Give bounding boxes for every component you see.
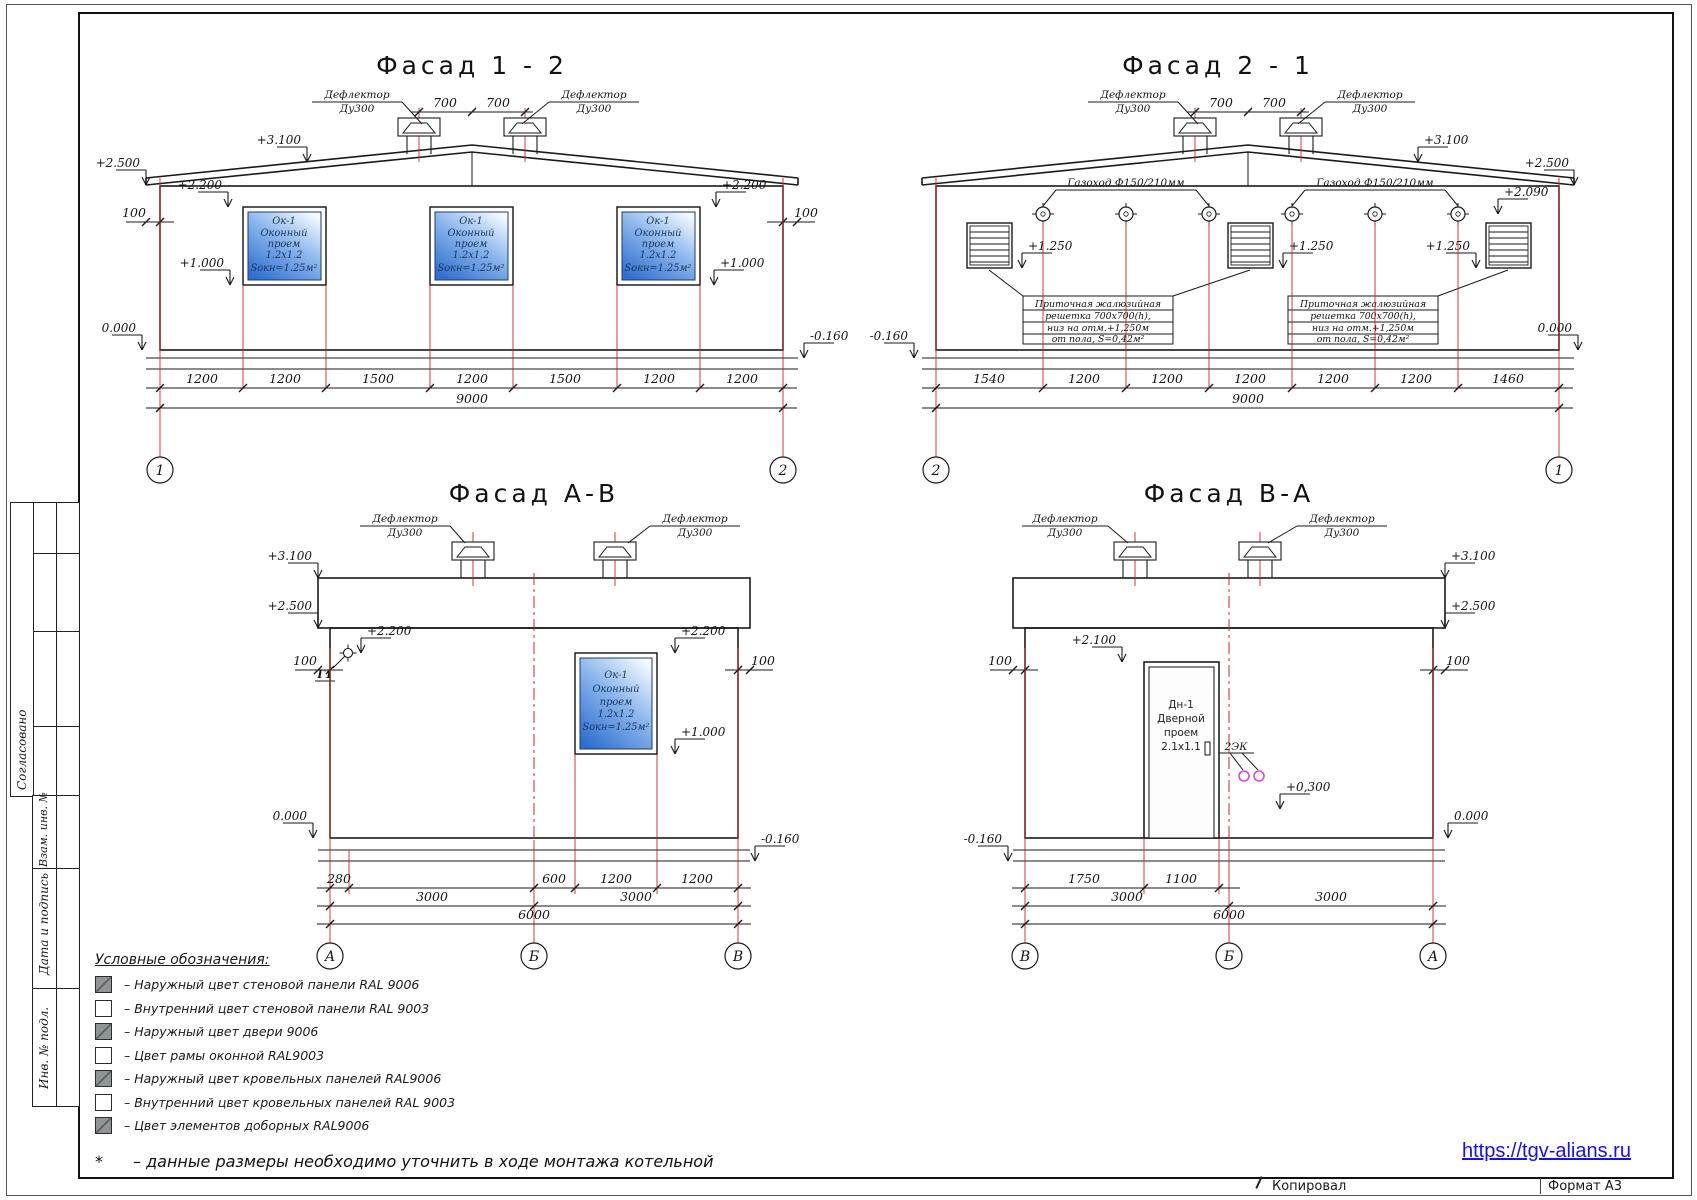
color-swatch-icon (95, 1094, 112, 1111)
color-swatch-icon (95, 1070, 112, 1087)
titleblock-inv-cell: Инв. № подл. (32, 988, 80, 1107)
svg-text:-0.160: -0.160 (870, 329, 909, 343)
svg-text:3000: 3000 (1315, 889, 1347, 904)
window: Ок-1Оконный проем1.2х1.2 Sокн=1.25м² (430, 207, 513, 285)
svg-text:проем: проем (642, 239, 674, 250)
svg-text:решетка 700х700(h),: решетка 700х700(h), (1310, 311, 1416, 322)
svg-text:Дн-1: Дн-1 (1168, 699, 1194, 711)
svg-text:100: 100 (122, 205, 146, 220)
svg-text:Дефлектор: Дефлектор (323, 89, 389, 101)
svg-text:+2.500: +2.500 (1451, 599, 1496, 613)
svg-text:+1.250: +1.250 (1289, 239, 1334, 253)
titleblock-divider (56, 989, 57, 1106)
svg-text:+2.100: +2.100 (1072, 633, 1117, 647)
svg-text:1200: 1200 (726, 371, 758, 386)
titleblock-divider (33, 503, 34, 796)
svg-text:+0,300: +0,300 (1286, 780, 1331, 794)
grille-note-box: Приточная жалюзийнаярешетка 700х700(h), … (989, 270, 1250, 345)
facade-title: Фасад В-А (1144, 479, 1314, 508)
svg-text:700: 700 (433, 95, 457, 110)
svg-text:0.000: 0.000 (1538, 321, 1573, 335)
svg-text:1540: 1540 (973, 371, 1005, 386)
footnote-star: * (95, 1152, 133, 1171)
svg-text:Дефлектор: Дефлектор (560, 89, 626, 101)
titleblock-divider (33, 726, 79, 727)
svg-text:решетка 700х700(h),: решетка 700х700(h), (1045, 311, 1151, 322)
svg-text:Дефлектор: Дефлектор (1336, 89, 1402, 101)
door-handle-icon (1205, 742, 1210, 755)
svg-text:1100: 1100 (1165, 871, 1197, 886)
svg-text:1750: 1750 (1068, 871, 1100, 886)
dimension-row: 12001200 15001200 15001200 1200 (146, 371, 797, 392)
svg-text:Sокн=1.25м²: Sокн=1.25м² (251, 263, 318, 274)
svg-text:Ок-1: Ок-1 (459, 216, 482, 227)
svg-text:Дефлектор: Дефлектор (1308, 513, 1374, 525)
svg-text:+1.000: +1.000 (720, 256, 765, 270)
svg-text:1200: 1200 (456, 371, 488, 386)
titleblock-soglasovano-label: Согласовано (15, 710, 29, 790)
svg-text:низ на отм.+1,250м: низ на отм.+1,250м (1312, 323, 1414, 334)
svg-text:проем: проем (268, 239, 300, 250)
svg-text:+2.500: +2.500 (96, 156, 141, 170)
titleblock-divider (33, 553, 79, 554)
legend-item-label: – Наружный цвет стеновой панели RAL 9006 (124, 977, 419, 992)
svg-text:+3.100: +3.100 (1451, 549, 1496, 563)
svg-text:1200: 1200 (600, 871, 632, 886)
svg-text:1200: 1200 (1234, 371, 1266, 386)
svg-text:проем: проем (1164, 727, 1198, 739)
legend-item-label: – Наружный цвет кровельных панелей RAL90… (124, 1071, 441, 1086)
color-swatch-icon (95, 976, 112, 993)
svg-text:проем: проем (455, 239, 487, 250)
titleblock-vzam-cell: Взам. инв. № (32, 795, 80, 870)
legend-item-label: – Наружный цвет двери 9006 (124, 1024, 318, 1039)
svg-text:+3.100: +3.100 (257, 133, 302, 147)
stack-spacing-dimension: 700 700 (1187, 95, 1309, 116)
door: Дн-1Дверной проем2.1х1.1 (1144, 662, 1219, 838)
svg-text:6000: 6000 (1213, 907, 1245, 922)
legend-item: – Наружный цвет кровельных панелей RAL90… (95, 1070, 695, 1087)
svg-text:700: 700 (486, 95, 510, 110)
svg-text:от пола, S=0,42м²: от пола, S=0,42м² (1317, 334, 1410, 345)
titleblock-vzam-label: Взам. инв. № (37, 792, 50, 867)
svg-text:+2.090: +2.090 (1504, 185, 1549, 199)
svg-text:1500: 1500 (549, 371, 581, 386)
svg-text:Дефлектор: Дефлектор (1031, 513, 1097, 525)
elevation-marks: +3.100 +2.500 +2.100 +0,300 0.000 -0.160… (964, 549, 1496, 861)
svg-text:100: 100 (1446, 653, 1470, 668)
grille-note-box: Приточная жалюзийнаярешетка 700х700(h), … (1288, 270, 1508, 345)
svg-text:Ду300: Ду300 (339, 103, 375, 115)
svg-text:Оконный: Оконный (593, 684, 640, 695)
svg-text:А: А (1427, 949, 1439, 965)
svg-text:100: 100 (794, 205, 818, 220)
svg-text:Sокн=1.25м²: Sокн=1.25м² (438, 263, 505, 274)
svg-text:Оконный: Оконный (448, 228, 495, 239)
svg-text:+1.250: +1.250 (1028, 239, 1073, 253)
svg-text:+2.200: +2.200 (178, 178, 223, 192)
legend-item: – Внутренний цвет стеновой панели RAL 90… (95, 1000, 695, 1017)
deflector-callout: Дефлектор Ду300 Дефлектор Ду300 (312, 89, 639, 124)
deflector-callout: Дефлектор Ду300 Дефлектор Ду300 (1088, 89, 1415, 124)
svg-text:Ду300: Ду300 (1115, 103, 1151, 115)
svg-text:Б: Б (1223, 949, 1234, 965)
legend-item: – Наружный цвет стеновой панели RAL 9006 (95, 976, 695, 993)
svg-text:+3.100: +3.100 (1424, 133, 1469, 147)
svg-text:1.2х1.2: 1.2х1.2 (640, 250, 677, 261)
svg-text:280: 280 (326, 871, 351, 886)
svg-text:+2.200: +2.200 (722, 178, 767, 192)
titleblock-date-label: Дата и подпись (37, 873, 51, 975)
gas-duct-outlets (1032, 203, 1469, 225)
footer-divider (1540, 1178, 1541, 1194)
facade-2-1-drawing: Фасад 2 - 1 700 700 Дефлектор Ду300 Дефл… (858, 28, 1668, 498)
window: Ок-1Оконный проем1.2х1.2 Sокн=1.25м² (617, 207, 700, 285)
svg-text:+1.250: +1.250 (1426, 239, 1471, 253)
svg-text:2.1х1.1: 2.1х1.1 (1161, 741, 1201, 753)
color-swatch-icon (95, 1023, 112, 1040)
svg-text:600: 600 (542, 871, 566, 886)
svg-text:1200: 1200 (643, 371, 675, 386)
svg-text:1460: 1460 (1492, 371, 1524, 386)
svg-text:+2.200: +2.200 (367, 624, 412, 638)
color-swatch-icon (95, 1117, 112, 1134)
svg-text:0.000: 0.000 (1454, 809, 1489, 823)
svg-text:1200: 1200 (1400, 371, 1432, 386)
titleblock-upper: Согласовано (10, 502, 80, 797)
svg-text:+3.100: +3.100 (268, 549, 313, 563)
legend: Условные обозначения: – Наружный цвет ст… (95, 952, 695, 1141)
svg-text:100: 100 (751, 653, 775, 668)
svg-text:Ду300: Ду300 (1352, 103, 1388, 115)
dimension-total: 9000 (146, 391, 797, 412)
svg-text:Дефлектор: Дефлектор (371, 513, 437, 525)
titleblock-divider (56, 796, 57, 869)
svg-text:Дверной: Дверной (1157, 713, 1205, 725)
svg-text:+1.000: +1.000 (180, 256, 225, 270)
color-swatch-icon (95, 1047, 112, 1064)
svg-text:Ду300: Ду300 (387, 527, 423, 539)
deflector-callout: Дефлектор Ду300 Дефлектор Ду300 (360, 513, 740, 543)
svg-text:+2.500: +2.500 (1525, 156, 1570, 170)
svg-text:Приточная жалюзийная: Приточная жалюзийная (1034, 299, 1161, 310)
svg-text:100: 100 (293, 653, 317, 668)
facade-title: Фасад 2 - 1 (1122, 51, 1314, 80)
svg-text:6000: 6000 (518, 907, 550, 922)
svg-text:1200: 1200 (681, 871, 713, 886)
svg-text:Дефлектор: Дефлектор (1099, 89, 1165, 101)
facade-a-b-drawing: Фасад А-В Дефлектор Ду300 Дефлектор Ду30… (255, 468, 935, 978)
svg-text:Sокн=1.25м²: Sокн=1.25м² (625, 263, 692, 274)
svg-text:+2.500: +2.500 (268, 599, 313, 613)
facade-title: Фасад 1 - 2 (376, 51, 568, 80)
svg-text:Ду300: Ду300 (1047, 527, 1083, 539)
legend-item: – Наружный цвет двери 9006 (95, 1023, 695, 1040)
legend-item-label: – Цвет элементов доборных RAL9006 (124, 1118, 369, 1133)
legend-item-label: – Цвет рамы оконной RAL9003 (124, 1048, 324, 1063)
svg-text:Ду300: Ду300 (1324, 527, 1360, 539)
stack-spacing-dimension: 700 700 (411, 95, 533, 116)
svg-text:1.2х1.2: 1.2х1.2 (266, 250, 303, 261)
svg-text:Газоход Ф150/210мм: Газоход Ф150/210мм (1066, 177, 1184, 189)
legend-item: – Цвет элементов доборных RAL9006 (95, 1117, 695, 1134)
titleblock-inv-label: Инв. № подл. (37, 1007, 51, 1089)
color-swatch-icon (95, 1000, 112, 1017)
svg-text:В: В (732, 949, 743, 965)
svg-text:Газоход Ф150/210мм: Газоход Ф150/210мм (1315, 177, 1433, 189)
svg-text:от пола, S=0,42м²: от пола, S=0,42м² (1052, 334, 1145, 345)
svg-text:100: 100 (988, 653, 1012, 668)
svg-text:-0.160: -0.160 (964, 832, 1003, 846)
site-link[interactable]: https://tgv-alians.ru (1462, 1140, 1631, 1163)
svg-text:Оконный: Оконный (635, 228, 682, 239)
svg-text:Ок-1: Ок-1 (604, 670, 627, 681)
titleblock-divider (56, 503, 57, 796)
svg-text:1: 1 (156, 463, 165, 479)
dimension-total: 9000 (922, 391, 1573, 412)
titleblock-date-cell: Дата и подпись (32, 868, 80, 990)
svg-text:В: В (1019, 949, 1030, 965)
cable-entry-2ek: 2ЭК (1218, 741, 1264, 781)
svg-text:-0.160: -0.160 (761, 832, 800, 846)
svg-text:9000: 9000 (1232, 391, 1264, 406)
svg-text:+1.000: +1.000 (681, 725, 726, 739)
svg-text:700: 700 (1209, 95, 1233, 110)
svg-text:9000: 9000 (456, 391, 488, 406)
svg-text:1200: 1200 (269, 371, 301, 386)
axis-marker: В Б А (1012, 943, 1446, 969)
legend-footnote: *– данные размеры необходимо уточнить в … (95, 1152, 713, 1171)
svg-text:0.000: 0.000 (102, 321, 137, 335)
svg-text:1200: 1200 (186, 371, 218, 386)
svg-text:Дефлектор: Дефлектор (661, 513, 727, 525)
drawing-sheet: Фасад 1 - 2 700 700 Дефлектор Ду300 Дефл… (0, 0, 1697, 1200)
svg-text:Sокн=1.25м²: Sокн=1.25м² (583, 722, 650, 733)
svg-text:низ на отм.+1,250м: низ на отм.+1,250м (1047, 323, 1149, 334)
svg-text:2ЭК: 2ЭК (1224, 741, 1249, 753)
svg-text:3000: 3000 (416, 889, 448, 904)
legend-item-label: – Внутренний цвет стеновой панели RAL 90… (124, 1001, 429, 1016)
svg-text:-0.160: -0.160 (810, 329, 849, 343)
facade-title: Фасад А-В (449, 479, 619, 508)
svg-text:Приточная жалюзийная: Приточная жалюзийная (1299, 299, 1426, 310)
svg-text:700: 700 (1262, 95, 1286, 110)
svg-text:Ду300: Ду300 (576, 103, 612, 115)
legend-title: Условные обозначения: (95, 952, 695, 968)
svg-text:1.2х1.2: 1.2х1.2 (598, 709, 635, 720)
svg-text:проем: проем (600, 697, 632, 708)
legend-item: – Внутренний цвет кровельных панелей RAL… (95, 1094, 695, 1111)
svg-text:3000: 3000 (620, 889, 652, 904)
svg-text:1.2х1.2: 1.2х1.2 (453, 250, 490, 261)
svg-text:Ок-1: Ок-1 (272, 216, 295, 227)
titleblock-divider (56, 869, 57, 989)
svg-text:3000: 3000 (1111, 889, 1143, 904)
svg-text:+2.200: +2.200 (681, 624, 726, 638)
svg-text:1200: 1200 (1317, 371, 1349, 386)
deflector-callout: Дефлектор Ду300 Дефлектор Ду300 (1022, 513, 1387, 543)
dimension-row: 15401200 12001200 12001200 1460 (922, 371, 1573, 392)
footnote-text: – данные размеры необходимо уточнить в х… (133, 1152, 713, 1171)
legend-item: – Цвет рамы оконной RAL9003 (95, 1047, 695, 1064)
gas-duct-callout: Газоход Ф150/210мм Газоход Ф150/210мм (1043, 177, 1458, 206)
svg-text:Ду300: Ду300 (677, 527, 713, 539)
facade-b-a-drawing: Фасад В-А Дефлектор Ду300 Дефлектор Ду30… (950, 468, 1630, 978)
svg-text:1200: 1200 (1151, 371, 1183, 386)
svg-text:Оконный: Оконный (261, 228, 308, 239)
kopiroval-label: Копировал (1272, 1179, 1346, 1194)
format-label: Формат А3 (1548, 1179, 1622, 1194)
gas-inlet-g1: Г1 (315, 645, 357, 682)
window: Ок-1Оконный проем1.2х1.2 Sокн=1.25м² (243, 207, 326, 285)
legend-item-label: – Внутренний цвет кровельных панелей RAL… (124, 1095, 455, 1110)
svg-text:Ок-1: Ок-1 (646, 216, 669, 227)
facade-1-2-drawing: Фасад 1 - 2 700 700 Дефлектор Ду300 Дефл… (82, 28, 892, 498)
window: Ок-1Оконный проем1.2х1.2 Sокн=1.25м² (575, 653, 657, 754)
svg-text:1200: 1200 (1068, 371, 1100, 386)
svg-text:1500: 1500 (362, 371, 394, 386)
titleblock-divider (33, 631, 79, 632)
svg-text:0.000: 0.000 (273, 809, 308, 823)
